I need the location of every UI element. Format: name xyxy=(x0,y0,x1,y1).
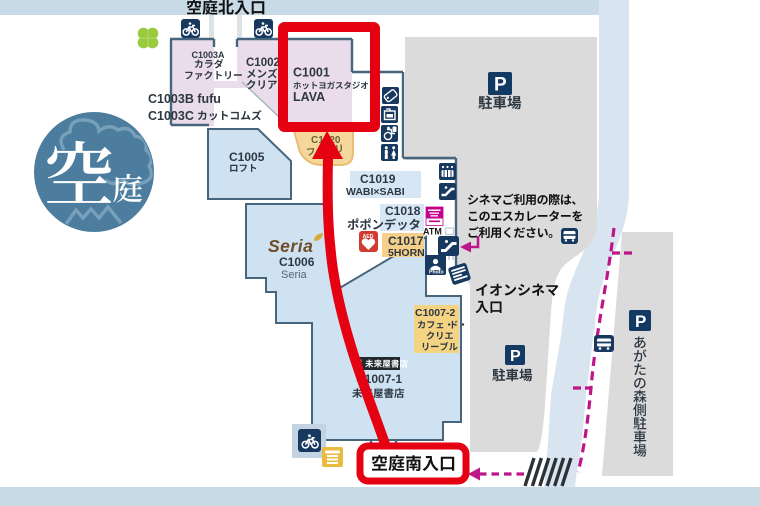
svg-text:Seria: Seria xyxy=(281,269,308,281)
svg-text:C1018: C1018 xyxy=(385,204,421,218)
svg-text:C1003A: C1003A xyxy=(191,50,225,60)
svg-text:C1017: C1017 xyxy=(388,234,424,248)
svg-text:C1001: C1001 xyxy=(293,66,330,80)
svg-text:P: P xyxy=(494,75,507,96)
svg-text:C1003B fufu: C1003B fufu xyxy=(148,92,221,106)
svg-text:ATM: ATM xyxy=(423,227,442,237)
svg-text:WABI×SABI: WABI×SABI xyxy=(346,186,405,198)
svg-text:C1002: C1002 xyxy=(246,57,280,69)
svg-text:C1006: C1006 xyxy=(279,255,315,269)
svg-text:C1019: C1019 xyxy=(360,172,396,186)
svg-text:C1007-2: C1007-2 xyxy=(415,307,455,319)
svg-text:LAVA: LAVA xyxy=(293,90,325,104)
svg-text:P: P xyxy=(635,312,646,331)
svg-text:5HORN: 5HORN xyxy=(388,247,425,259)
svg-text:Seria: Seria xyxy=(268,236,313,256)
svg-text:P: P xyxy=(510,348,521,365)
svg-text:C1005: C1005 xyxy=(229,150,265,164)
svg-text:Photo: Photo xyxy=(429,270,444,276)
svg-text:C1003C: C1003C xyxy=(148,109,194,123)
